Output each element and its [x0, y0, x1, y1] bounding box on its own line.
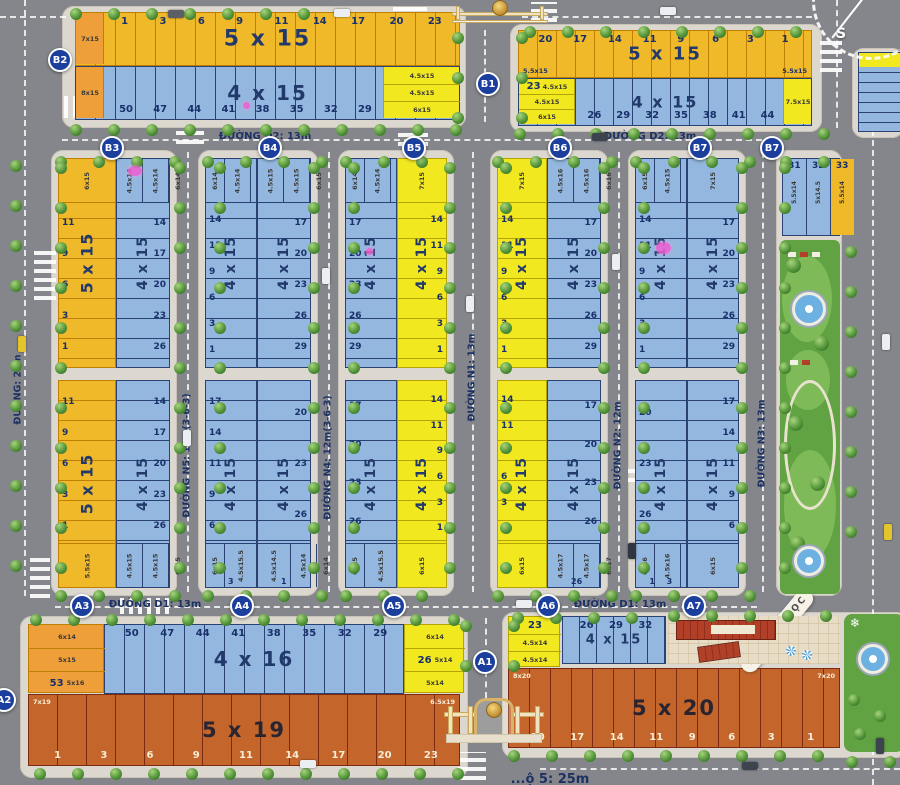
- block-marker-a6: A6: [536, 594, 560, 618]
- block-marker-a5: A5: [382, 594, 406, 618]
- block-marker-a2: A2: [0, 688, 16, 712]
- block-markers: B2B1B3B4B5B6B7B7A3A4A5A6A7A1A2: [0, 0, 900, 785]
- block-marker-a7: A7: [682, 594, 706, 618]
- block-marker-b1: B1: [476, 72, 500, 96]
- block-marker-a3: A3: [70, 594, 94, 618]
- block-marker-a1: A1: [473, 650, 497, 674]
- block-marker-b7: B7: [760, 136, 784, 160]
- block-marker-b2: B2: [48, 48, 72, 72]
- block-marker-b7: B7: [688, 136, 712, 160]
- block-marker-b6: B6: [548, 136, 572, 160]
- block-marker-a4: A4: [230, 594, 254, 618]
- block-marker-b3: B3: [100, 136, 124, 160]
- master-plan-map: 7x15136911141720235 x 158x154.5x154.5x15…: [0, 0, 900, 785]
- block-marker-b4: B4: [258, 136, 282, 160]
- block-marker-b5: B5: [402, 136, 426, 160]
